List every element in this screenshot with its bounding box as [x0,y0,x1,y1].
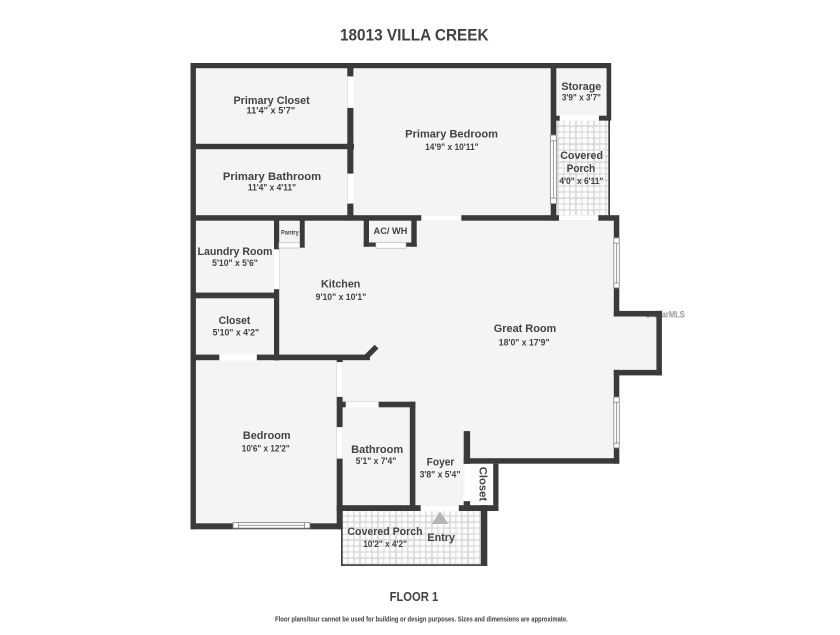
svg-text:Kitchen: Kitchen [321,279,360,291]
svg-text:Storage: Storage [561,81,601,93]
svg-text:FLOOR 1: FLOOR 1 [390,589,439,604]
svg-text:AC/ WH: AC/ WH [374,226,408,237]
svg-text:Pantry: Pantry [281,229,299,236]
svg-text:Bedroom: Bedroom [243,430,291,442]
svg-text:Closet: Closet [219,315,251,327]
svg-text:11'4" x 4'11": 11'4" x 4'11" [248,182,296,192]
svg-text:9'10" x 10'1": 9'10" x 10'1" [316,292,367,302]
svg-text:Floor plans/tour cannot be use: Floor plans/tour cannot be used for buil… [275,614,568,623]
svg-text:Porch: Porch [567,163,596,175]
svg-text:Great Room: Great Room [494,323,557,335]
svg-text:Laundry Room: Laundry Room [198,246,273,258]
svg-text:10'2" x 4'2": 10'2" x 4'2" [363,539,407,549]
svg-text:Entry: Entry [427,532,455,544]
svg-text:14'9" x 10'11": 14'9" x 10'11" [425,142,479,152]
svg-text:Closet: Closet [476,467,488,502]
svg-text:5'1" x 7'4": 5'1" x 7'4" [356,456,397,466]
svg-text:StellarMLS: StellarMLS [646,310,685,321]
svg-text:Primary Bathroom: Primary Bathroom [223,171,321,183]
svg-text:3'8" x 5'4": 3'8" x 5'4" [420,470,461,480]
svg-text:18'0" x 17'9": 18'0" x 17'9" [499,338,550,348]
svg-text:Bathroom: Bathroom [351,444,403,456]
svg-text:11'4" x 5'7": 11'4" x 5'7" [247,106,296,116]
svg-text:Primary Bedroom: Primary Bedroom [405,129,498,141]
svg-text:5'10" x 4'2": 5'10" x 4'2" [213,328,260,338]
svg-text:18013 VILLA CREEK: 18013 VILLA CREEK [340,27,489,45]
svg-text:3'9" x 3'7": 3'9" x 3'7" [562,92,601,102]
svg-text:4'0" x 6'11": 4'0" x 6'11" [559,176,603,186]
svg-text:5'10" x 5'6": 5'10" x 5'6" [212,258,258,268]
svg-text:Foyer: Foyer [427,457,455,469]
svg-text:Covered: Covered [560,150,603,162]
svg-text:Covered Porch: Covered Porch [347,526,422,538]
svg-text:10'6" x 12'2": 10'6" x 12'2" [242,444,290,454]
